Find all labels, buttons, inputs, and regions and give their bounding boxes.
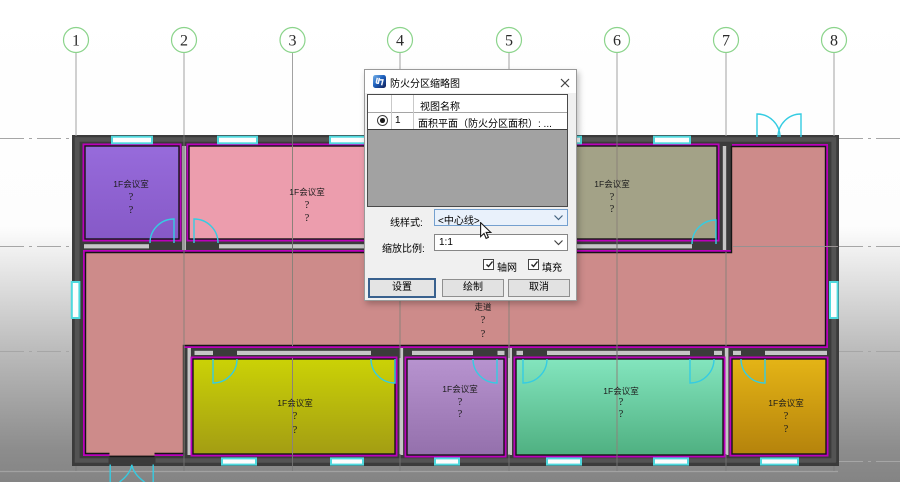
svg-text:?: ? [610,192,615,203]
svg-text:?: ? [458,397,463,408]
svg-text:?: ? [305,213,310,224]
svg-text:走道: 走道 [474,302,492,312]
svg-text:?: ? [481,315,486,326]
svg-text:?: ? [293,411,298,422]
svg-text:?: ? [458,409,463,420]
svg-text:?: ? [129,205,134,216]
svg-text:?: ? [129,192,134,203]
svg-text:?: ? [619,397,624,408]
svg-text:7: 7 [722,33,730,50]
svg-text:?: ? [481,329,486,340]
svg-text:1F会议室: 1F会议室 [594,179,630,189]
svg-text:1: 1 [72,33,80,50]
svg-text:?: ? [784,424,789,435]
svg-text:6: 6 [613,33,621,50]
svg-text:5: 5 [505,33,513,50]
svg-text:8: 8 [830,33,838,50]
svg-text:1F会议室: 1F会议室 [768,398,804,408]
svg-text:1F会议室: 1F会议室 [442,384,478,394]
svg-text:4: 4 [396,33,404,50]
svg-text:?: ? [293,425,298,436]
svg-text:?: ? [610,204,615,215]
svg-text:?: ? [784,411,789,422]
svg-text:1F会议室: 1F会议室 [603,386,639,396]
svg-text:1F会议室: 1F会议室 [113,179,149,189]
svg-text:1F会议室: 1F会议室 [277,398,313,408]
svg-text:1F会议室: 1F会议室 [289,187,325,197]
svg-text:2: 2 [180,33,188,50]
svg-text:3: 3 [289,33,297,50]
svg-text:?: ? [305,200,310,211]
svg-text:?: ? [619,409,624,420]
